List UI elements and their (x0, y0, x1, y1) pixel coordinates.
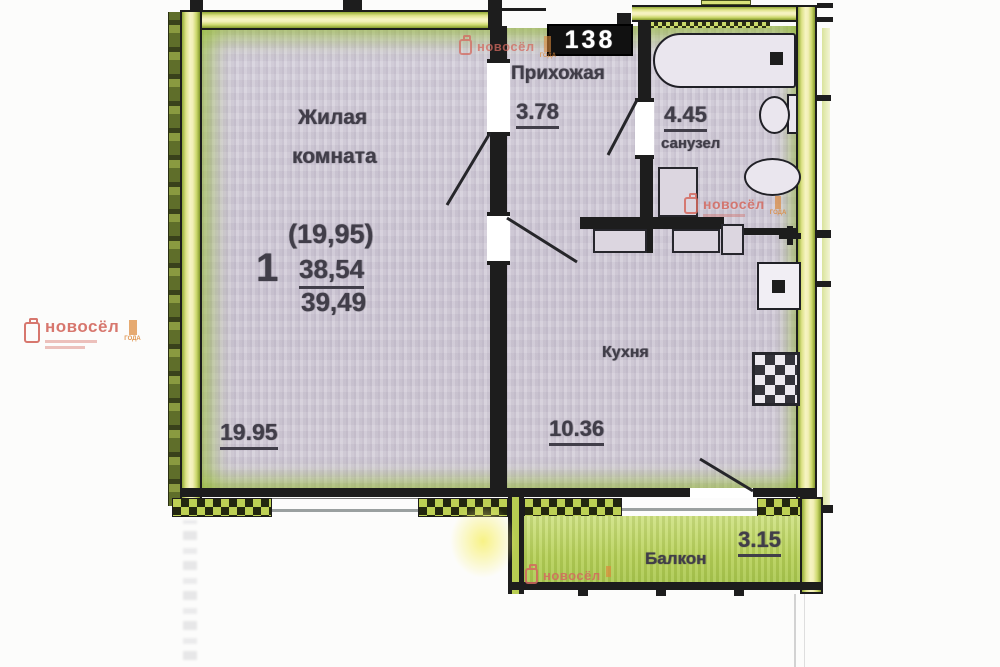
brand-name: новосёл (45, 317, 119, 336)
watermark-left-text: новосёл (45, 318, 119, 349)
summary-living-area: (19,95) (288, 219, 374, 250)
hallway-label: Прихожая (511, 63, 605, 85)
award-icon (129, 320, 137, 335)
living-room-label-2: комната (292, 145, 377, 169)
brand-tagline-bar (45, 340, 97, 343)
kitchen-area: 10.36 (549, 416, 604, 446)
summary-area-no-balcony: 38,54 (299, 254, 364, 289)
award-badge (606, 566, 611, 577)
kitchen-label: Кухня (602, 344, 649, 362)
brand-name: новосёл (543, 569, 601, 582)
watermark-top: новосёл ГОДА (459, 36, 556, 59)
watermark-middle-text: новосёл (703, 194, 765, 217)
award-badge: ГОДА (540, 36, 557, 59)
balcony-label: Балкон (645, 549, 706, 569)
summary-area-total: 39,49 (301, 287, 366, 318)
bathroom-area: 4.45 (664, 102, 707, 132)
summary-rooms-count: 1 (256, 246, 278, 291)
award-text: ГОДА (124, 336, 141, 342)
brand-tagline-bar2 (45, 346, 85, 349)
balcony-area: 3.15 (738, 527, 781, 557)
award-text: ГОДА (540, 53, 557, 59)
house-icon (24, 322, 40, 343)
brand-name: новосёл (703, 197, 765, 211)
award-badge: ГОДА (770, 196, 787, 216)
award-badge: ГОДА (124, 320, 141, 342)
living-room-label-1: Жилая (298, 106, 367, 130)
door-swing-lines (0, 0, 1000, 667)
watermark-left: новосёл ГОДА (24, 318, 141, 349)
watermark-balcony: новосёл (525, 566, 611, 584)
living-room-area: 19.95 (220, 419, 278, 450)
brand-name: новосёл (477, 40, 535, 53)
house-icon (459, 39, 472, 55)
hallway-area: 3.78 (516, 99, 559, 129)
award-icon (544, 36, 551, 52)
house-icon (684, 197, 698, 214)
watermark-middle: новосёл ГОДА (684, 194, 786, 217)
award-icon (775, 196, 781, 209)
house-icon (525, 568, 538, 584)
bathroom-label: санузел (661, 135, 720, 152)
award-text: ГОДА (770, 210, 787, 216)
award-icon (606, 566, 611, 577)
brand-tagline-bar (703, 214, 745, 217)
